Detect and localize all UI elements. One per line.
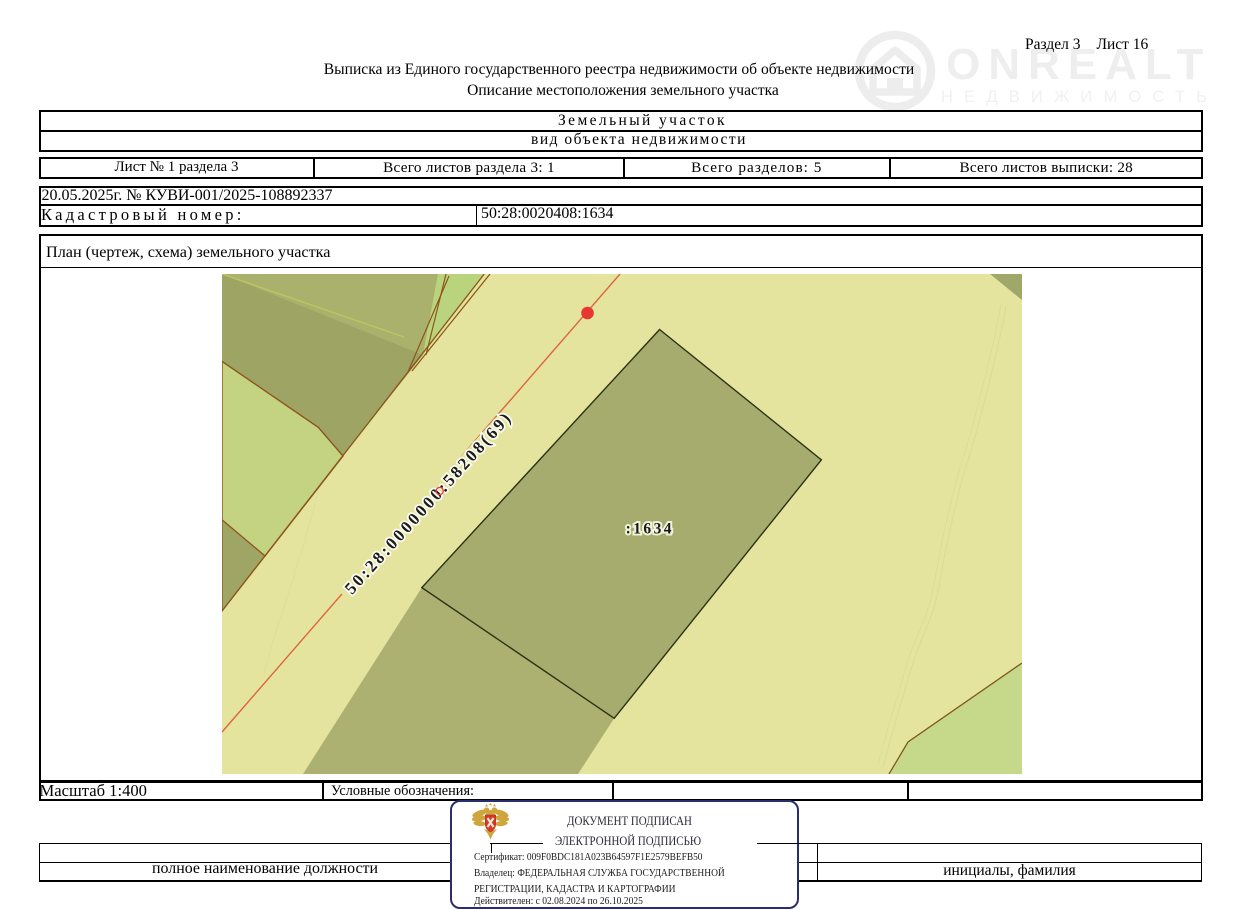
svg-text::1634: :1634 bbox=[626, 521, 674, 538]
